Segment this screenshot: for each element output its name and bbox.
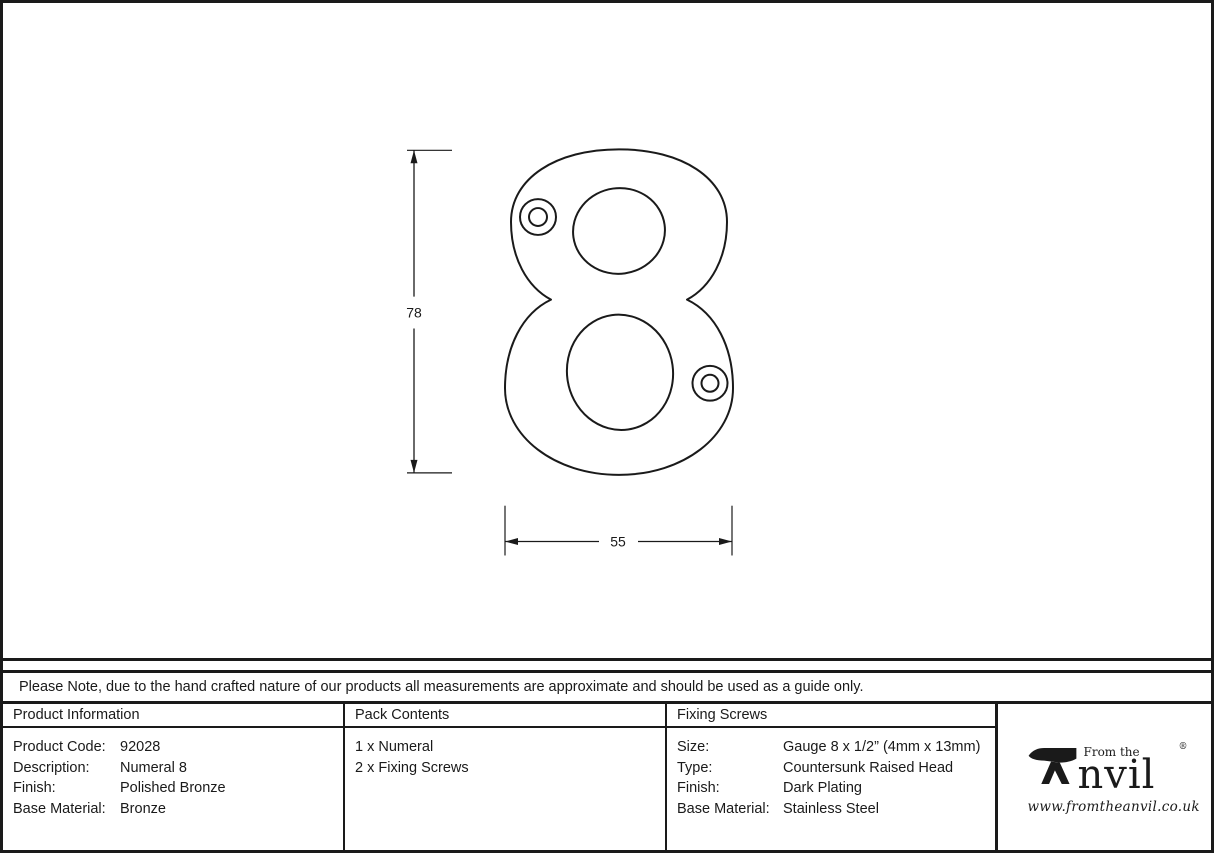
field-label: Base Material: — [677, 799, 783, 820]
field-label: Finish: — [677, 778, 783, 799]
arrow-left-icon — [505, 538, 518, 545]
anvil-logo: From the nvil ® www.fromtheanvil.co.uk — [1026, 742, 1184, 812]
arrow-up-icon — [411, 150, 418, 163]
technical-drawing: 78 55 — [3, 3, 1211, 661]
fixing-screws-header: Fixing Screws — [667, 704, 998, 728]
spec-sheet-page: 78 55 Please Note, due to the hand craft… — [0, 0, 1214, 853]
table-row: Finish: Polished Bronze — [13, 778, 343, 799]
logo-url: www.fromtheanvil.co.uk — [1028, 799, 1200, 815]
product-information-header: Product Information — [3, 704, 345, 728]
numeral-drawing-svg: 78 55 — [3, 3, 1211, 658]
measurement-note: Please Note, due to the hand crafted nat… — [3, 670, 1211, 704]
field-value: Polished Bronze — [120, 778, 226, 799]
spec-table: Product Information Pack Contents Fixing… — [3, 704, 1211, 850]
table-row: Type: Countersunk Raised Head — [677, 758, 995, 779]
table-row: Size: Gauge 8 x 1/2” (4mm x 13mm) — [677, 737, 995, 758]
brand-logo-cell: From the nvil ® www.fromtheanvil.co.uk — [998, 704, 1211, 850]
table-row: Product Code: 92028 — [13, 737, 343, 758]
table-row: Base Material: Bronze — [13, 799, 343, 820]
field-label: Base Material: — [13, 799, 120, 820]
product-information-cell: Product Code: 92028 Description: Numeral… — [3, 728, 345, 850]
screw-hole-bottom — [693, 366, 728, 401]
screw-hole-top — [520, 199, 556, 235]
width-dimension-label: 55 — [610, 534, 626, 550]
field-value: Gauge 8 x 1/2” (4mm x 13mm) — [783, 737, 980, 758]
pack-contents-header: Pack Contents — [345, 704, 667, 728]
pack-contents-cell: 1 x Numeral 2 x Fixing Screws — [345, 728, 667, 850]
divider-gap — [3, 661, 1211, 670]
registered-mark: ® — [1179, 742, 1188, 752]
field-label: Type: — [677, 758, 783, 779]
field-label: Size: — [677, 737, 783, 758]
table-row: Finish: Dark Plating — [677, 778, 995, 799]
table-row: Base Material: Stainless Steel — [677, 799, 995, 820]
anvil-icon — [1026, 746, 1078, 785]
field-value: Stainless Steel — [783, 799, 879, 820]
pack-item: 1 x Numeral — [355, 737, 665, 758]
field-value: Numeral 8 — [120, 758, 187, 779]
field-value: Countersunk Raised Head — [783, 758, 953, 779]
logo-brand-text: nvil — [1078, 755, 1156, 795]
field-value: 92028 — [120, 737, 160, 758]
table-row: Description: Numeral 8 — [13, 758, 343, 779]
pack-item: 2 x Fixing Screws — [355, 758, 665, 779]
width-dimension: 55 — [505, 506, 732, 556]
field-label: Finish: — [13, 778, 120, 799]
height-dimension-label: 78 — [406, 305, 422, 321]
field-label: Product Code: — [13, 737, 120, 758]
fixing-screws-cell: Size: Gauge 8 x 1/2” (4mm x 13mm) Type: … — [667, 728, 998, 850]
arrow-right-icon — [719, 538, 732, 545]
field-value: Dark Plating — [783, 778, 862, 799]
field-value: Bronze — [120, 799, 166, 820]
height-dimension: 78 — [406, 150, 452, 473]
arrow-down-icon — [411, 460, 418, 473]
note-text: Please Note, due to the hand crafted nat… — [19, 679, 863, 695]
field-label: Description: — [13, 758, 120, 779]
